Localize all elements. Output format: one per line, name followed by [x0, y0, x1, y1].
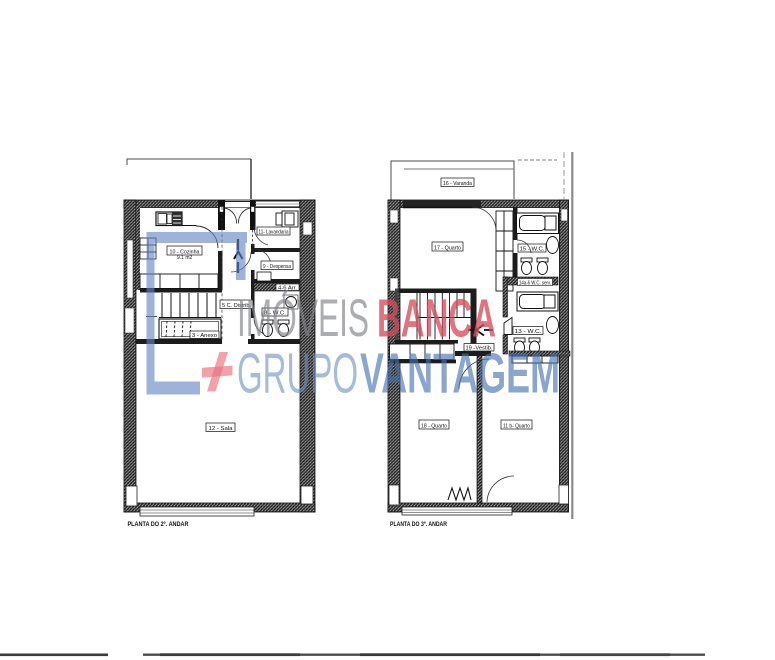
svg-text:9.1 m2: 9.1 m2: [177, 255, 193, 261]
svg-text:17 - Quarto: 17 - Quarto: [434, 246, 461, 252]
svg-text:IMÓVEIS: IMÓVEIS: [237, 289, 369, 348]
svg-text:14a-6 W.C. serv.: 14a-6 W.C. serv.: [519, 280, 551, 286]
svg-text:13 - W.C.: 13 - W.C.: [515, 329, 542, 335]
svg-text:15 - W.C.: 15 - W.C.: [520, 247, 545, 253]
svg-text:11 b- Quarto: 11 b- Quarto: [503, 424, 530, 430]
svg-text:12 - Sala: 12 - Sala: [209, 426, 233, 432]
svg-text:PLANTA DO 3º. ANDAR: PLANTA DO 3º. ANDAR: [390, 521, 447, 528]
svg-text:PLANTA DO 2º. ANDAR: PLANTA DO 2º. ANDAR: [128, 521, 189, 528]
svg-text:3 - Anexo: 3 - Anexo: [192, 333, 217, 339]
svg-text:9 - Despensa: 9 - Despensa: [263, 264, 291, 270]
svg-text:16 - Varanda: 16 - Varanda: [443, 181, 472, 187]
svg-text:18 - Quarto: 18 - Quarto: [421, 424, 447, 430]
svg-text:GRUPO: GRUPO: [237, 342, 358, 406]
svg-text:BANCA: BANCA: [377, 290, 496, 349]
svg-text:11- Lavandaria: 11- Lavandaria: [259, 230, 289, 236]
svg-text:VANTAGEM: VANTAGEM: [360, 342, 560, 406]
